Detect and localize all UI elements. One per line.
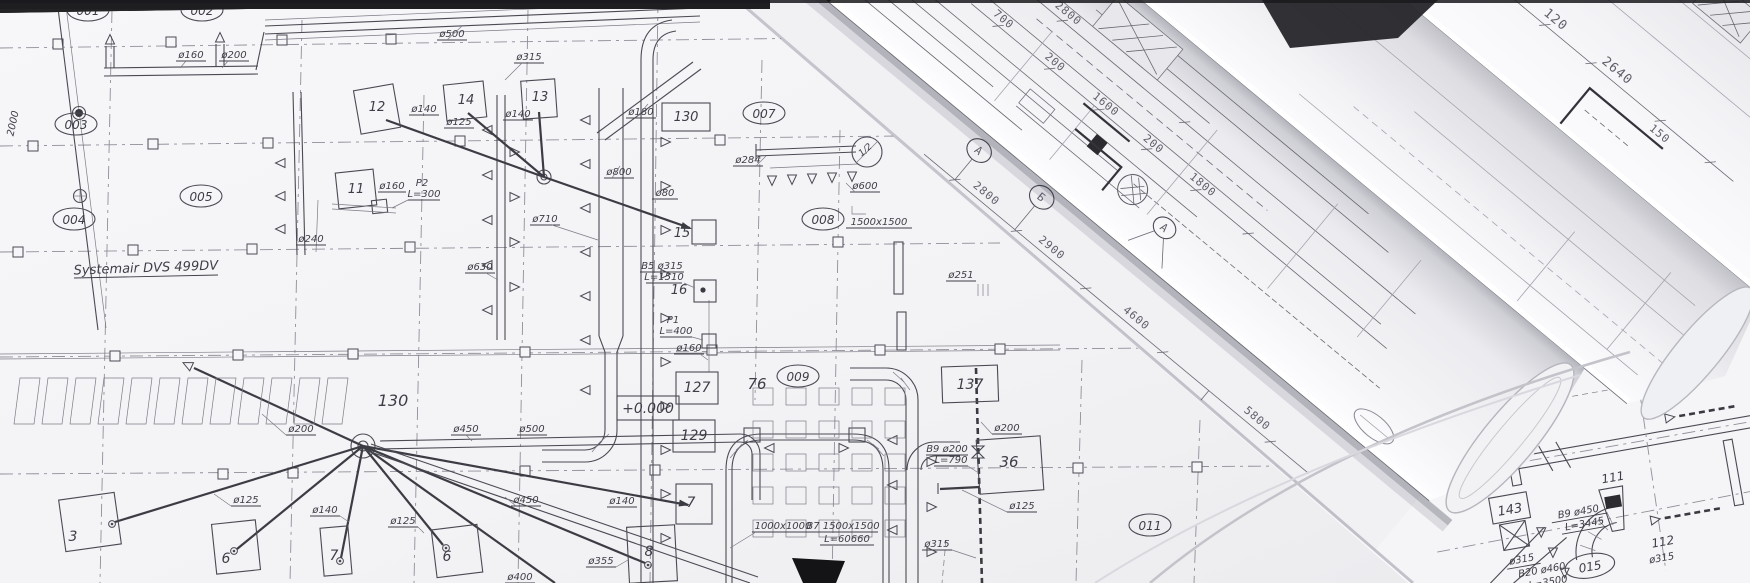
dim-label: ø125 [232, 495, 258, 506]
tag-129: 129 [681, 428, 708, 444]
dim-label: ø140 [410, 104, 436, 115]
dim-label: ø80 [655, 188, 675, 199]
dim-label: ø710 [531, 214, 557, 225]
note-label: P1 [667, 315, 679, 326]
dim-label: ø315 [923, 539, 949, 550]
tag-127: 127 [684, 380, 711, 396]
tag-3: 3 [69, 529, 78, 545]
note-label: L=1510 [644, 272, 683, 283]
dim-label: ø400 [506, 572, 532, 583]
dim-label: ø450 [452, 424, 478, 435]
note-label: P2 [416, 178, 428, 189]
room-tag-label: 003 [65, 118, 88, 132]
dim-label: ø160 [675, 343, 701, 354]
dim-label: ø450 [512, 495, 538, 506]
table-edge-thin [0, 0, 1750, 3]
dim-label: ø251 [947, 270, 973, 281]
room-tag-label: 004 [63, 213, 86, 227]
tag-8: 8 [645, 544, 654, 560]
dim-label: ø200 [287, 424, 313, 435]
dim-label: ø140 [608, 496, 634, 507]
tag-13: 13 [532, 90, 549, 105]
tag-12: 12 [369, 100, 386, 115]
dim-label: ø500 [518, 424, 544, 435]
note-label: B7 1500x1500 [806, 521, 879, 532]
dim-label: ø125 [389, 516, 415, 527]
dim-label: ø284 [734, 155, 760, 166]
dim-label: ø200 [220, 50, 246, 61]
tag-14: 14 [458, 93, 475, 108]
tag-15: 15 [674, 226, 691, 241]
dim-label: ø630 [466, 262, 492, 273]
dim-label: ø125 [1008, 501, 1034, 512]
dim-label: ø140 [311, 505, 337, 516]
dim-label: ø160 [378, 181, 404, 192]
dim-label: ø355 [587, 556, 613, 567]
tag-130b: 130 [378, 391, 409, 410]
room-tag-label: 009 [787, 370, 810, 384]
tag-76: 76 [747, 375, 766, 393]
tag-6b: 6 [443, 549, 452, 565]
note-label: L=790 [934, 455, 967, 466]
note-label: L=300 [407, 189, 440, 200]
tag-11: 11 [348, 182, 365, 197]
tag-7b: 7 [687, 495, 696, 511]
blueprint-scene: ø1000 143 ø315 111 B9 ø450 L=3445 112 ø3… [0, 0, 1750, 583]
tag-6a: 6 [222, 551, 231, 567]
room-tag-label: 005 [190, 190, 213, 204]
note-label: B5 ø315 [641, 261, 683, 272]
note-label: L=60660 [824, 534, 870, 545]
tag-36: 36 [999, 453, 1018, 471]
dim-label: ø240 [297, 234, 323, 245]
room-tag-label: 007 [753, 107, 776, 121]
tag-16: 16 [671, 283, 688, 298]
tag-137: 137 [957, 377, 984, 393]
note-label: 1500x1500 [851, 217, 908, 228]
dim-label: ø140 [504, 109, 530, 120]
level-mark: +0.000 [622, 401, 674, 417]
note-label: B9 ø200 [926, 444, 968, 455]
room-tag-label: 011 [1139, 519, 1162, 533]
tag-130: 130 [674, 110, 699, 125]
blueprint-photo: ø1000 143 ø315 111 B9 ø450 L=3445 112 ø3… [0, 0, 1750, 583]
dim-label: ø125 [445, 117, 471, 128]
dim-label: ø500 [438, 29, 464, 40]
dim-label: ø160 [177, 50, 203, 61]
dim-label: ø200 [993, 423, 1019, 434]
room-tag-label: 008 [812, 213, 835, 227]
dim-label: ø315 [515, 52, 541, 63]
note-label: 1000x1000 [755, 521, 812, 532]
dim-label: ø600 [851, 181, 877, 192]
tag-7a: 7 [330, 548, 339, 564]
note-label: L=400 [659, 326, 692, 337]
